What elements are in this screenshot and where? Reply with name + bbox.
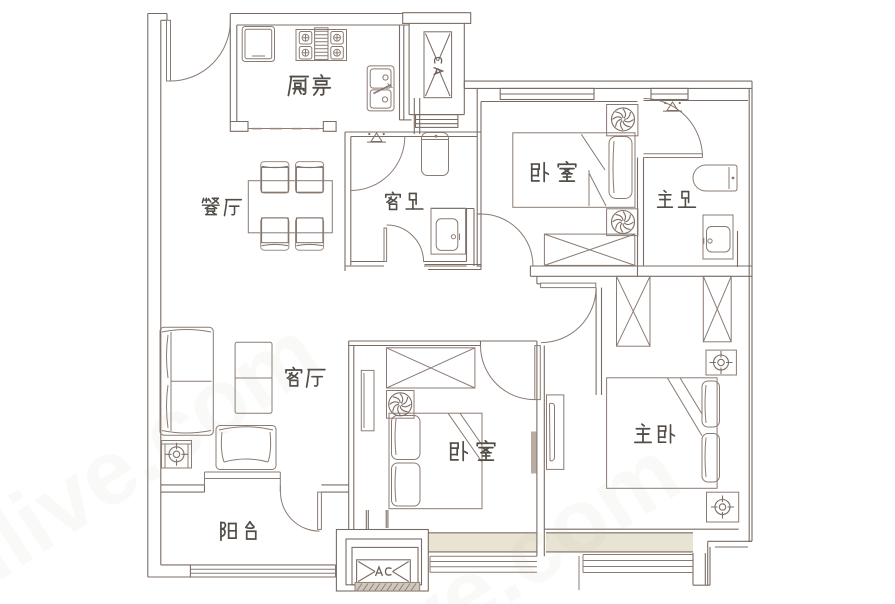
svg-text:ulive.com: ulive.com bbox=[0, 300, 337, 604]
